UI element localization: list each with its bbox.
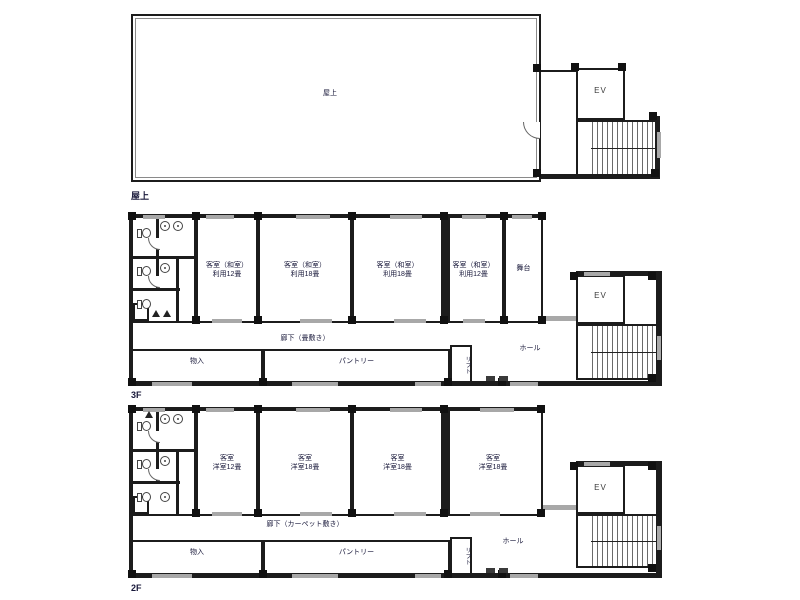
wall-segment [131,449,196,452]
wall-pillar [128,378,136,386]
window-segment [212,319,242,323]
window-segment [584,462,610,466]
wall-pillar [533,64,541,72]
wall-pillar [128,570,136,578]
wall-pillar [254,212,262,220]
tiny-annotation-mark [499,568,508,573]
wall-pillar [254,509,262,517]
wall-pillar [440,316,448,324]
f3-pantry-room [263,349,450,385]
f2-stairs [576,514,660,568]
wall-segment [176,259,179,323]
f3-room3-label: 客室（和室） 利用18畳 [352,261,443,279]
f3-elevator-label: EV [577,291,624,300]
f2-room4-label: 客室 洋室18畳 [443,454,543,472]
toilet-icon [137,492,151,502]
window-segment [152,574,192,578]
f2-hall-label: ホール [488,537,538,546]
wall-pillar [348,212,356,220]
window-segment [206,215,234,219]
washbasin-icon [160,414,170,424]
wall-pillar [192,212,200,220]
wall-pillar [571,63,579,71]
wall-pillar [538,316,546,324]
f2-corridor-label: 廊下（カーペット敷き） [225,520,385,529]
f3-room2-label: 客室（和室） 利用18畳 [258,261,352,279]
f3-lift-label: リフト [452,348,470,382]
window-segment [512,215,532,219]
wall-pillar [538,212,546,220]
washbasin-icon [173,414,183,424]
window-segment [292,382,338,386]
window-segment [296,408,330,412]
window-segment [584,272,610,276]
f3-room1-label: 客室（和室） 利用12畳 [196,261,258,279]
wall-segment [176,452,179,516]
window-segment [657,336,661,360]
roof-deck [131,14,541,182]
roof-floor-label: 屋上 [131,189,149,202]
f3-stage-label: 舞台 [504,264,543,273]
window-segment [657,526,661,550]
window-segment [415,382,441,386]
window-segment [152,382,192,386]
window-segment [292,574,338,578]
window-segment [463,319,485,323]
wall-pillar [128,212,136,220]
toilet-icon [137,266,151,276]
wall-segment [131,381,662,386]
wall-segment [656,463,662,578]
toilet-icon [137,421,151,431]
window-segment [300,512,332,516]
f2-storage-room [131,540,263,576]
wall-pillar [192,509,200,517]
wall-pillar [348,316,356,324]
fixture-triangle-mark [152,310,160,317]
f3-room4-label: 客室（和室） 利用12畳 [443,261,504,279]
wall-pillar [570,272,578,280]
wall-pillar [648,462,656,470]
window-segment [657,132,661,158]
roof-stair-vestibule [539,70,578,178]
wall-pillar [440,212,448,220]
f3-floor-label: 3F [131,390,142,400]
tiny-annotation-mark [486,376,495,381]
tiny-annotation-mark [499,376,508,381]
toilet-icon [137,228,151,238]
roof-stairs [576,120,660,176]
f2-pantry-room [263,540,450,576]
toilet-icon [137,459,151,469]
wall-pillar [128,405,136,413]
f2-room2-label: 客室 洋室18畳 [258,454,352,472]
wall-pillar [444,570,452,578]
toilet-icon [137,299,151,309]
f3-corridor-label: 廊下（畳敷き） [230,334,380,343]
fixture-triangle-mark [145,411,153,418]
window-segment [510,382,538,386]
wall-pillar [254,316,262,324]
window-segment [480,408,514,412]
wall-pillar [254,405,262,413]
washbasin-icon [160,492,170,502]
f3-stairs [576,324,660,380]
wall-pillar [649,112,657,120]
window-segment [394,319,426,323]
wall-pillar [444,378,452,386]
wall-pillar [570,462,578,470]
wall-pillar [259,378,267,386]
f3-storage-room [131,349,263,385]
window-segment [462,215,486,219]
wall-pillar [648,272,656,280]
wall-pillar [440,405,448,413]
wall-pillar [537,509,545,517]
wall-pillar [648,374,656,382]
roof-area-label: 屋上 [300,89,360,98]
f2-room3-label: 客室 洋室18畳 [352,454,443,472]
wall-pillar [648,564,656,572]
f2-lift-label: リフト [452,540,470,572]
washbasin-icon [160,263,170,273]
wall-pillar [500,316,508,324]
window-segment [143,215,165,219]
f2-elevator-label: EV [577,483,624,492]
wall-pillar [348,405,356,413]
f2-pantry-label: パントリー [263,548,450,557]
f2-room1-label: 客室 洋室12畳 [196,454,258,472]
wall-pillar [618,63,626,71]
wall-pillar [500,212,508,220]
wall-pillar [651,169,659,177]
washbasin-icon [160,221,170,231]
wall-segment [131,573,662,578]
fixture-triangle-mark [163,310,171,317]
f3-storage-label: 物入 [131,357,263,366]
washbasin-icon [173,221,183,231]
wall-pillar [537,405,545,413]
window-segment [212,512,242,516]
wall-pillar [348,509,356,517]
window-segment [543,316,576,321]
floor-plan-image: 屋上 EV 屋上 客室（和室） 利用12畳 客室（和室） 利用18畳 客室（和室… [0,0,800,600]
window-segment [470,512,500,516]
window-segment [390,215,422,219]
window-segment [394,512,426,516]
f3-hall-label: ホール [505,344,555,353]
f2-storage-label: 物入 [131,548,263,557]
wall-pillar [440,509,448,517]
window-segment [543,505,576,510]
f3-pantry-label: パントリー [263,357,450,366]
wall-segment [539,174,660,179]
roof-elevator-label: EV [577,86,624,95]
window-segment [510,574,538,578]
wall-pillar [192,316,200,324]
window-segment [390,408,422,412]
window-segment [415,574,441,578]
window-segment [300,319,332,323]
window-segment [296,215,330,219]
tiny-annotation-mark [486,568,495,573]
wall-pillar [533,169,541,177]
washbasin-icon [160,456,170,466]
wall-pillar [259,570,267,578]
f2-floor-label: 2F [131,583,142,593]
wall-segment [131,256,196,259]
wall-pillar [192,405,200,413]
window-segment [206,408,234,412]
wall-segment [656,273,662,386]
